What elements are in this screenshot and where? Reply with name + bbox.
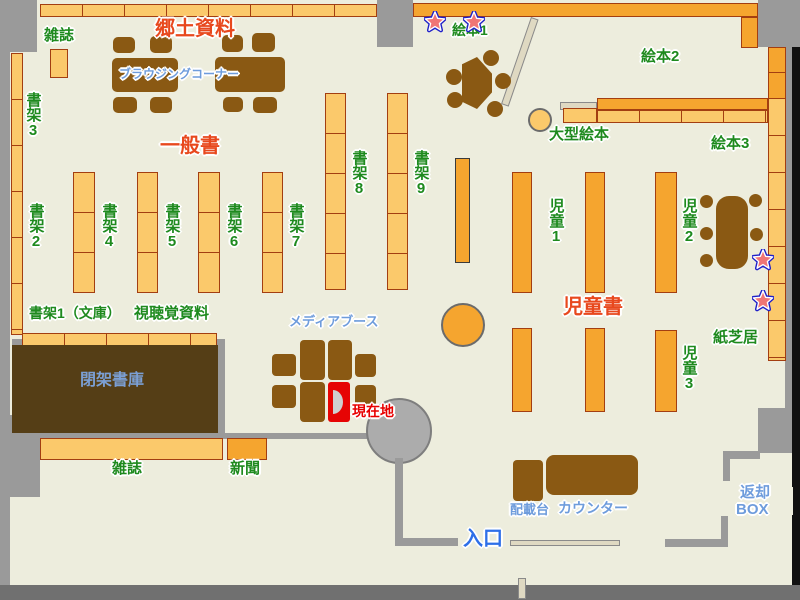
chair [223, 97, 243, 112]
media-booth-seat [300, 382, 325, 422]
haisaidai-desk [513, 460, 543, 501]
shelf-shoka4 [73, 172, 95, 293]
label-returnbox-line1: 返却 [740, 485, 770, 502]
current-location-seat [333, 390, 343, 414]
stool [487, 101, 503, 117]
label-heika-shoko: 閉架書庫 [80, 372, 144, 390]
label-media-booth: メディアブース [289, 315, 378, 329]
stool [495, 73, 511, 89]
stool [700, 254, 713, 267]
label-shoka4: 書架4 [100, 203, 117, 250]
stool [700, 227, 713, 240]
star-icon [752, 249, 774, 271]
shelf-narrow-center [455, 158, 470, 263]
label-ehon3: 絵本3 [711, 136, 749, 153]
label-counter: カウンター [558, 501, 628, 516]
chair [253, 97, 277, 113]
label-shoka9: 書架9 [412, 150, 429, 197]
shelf-jido3 [655, 330, 677, 412]
round-table-center [441, 303, 485, 347]
chair [113, 97, 137, 113]
media-booth-seat [355, 354, 376, 377]
shelf-jido-lower-1 [512, 328, 532, 412]
shelf-shinbun [227, 438, 267, 460]
chair [150, 97, 172, 113]
shelf-jido-upper-3 [655, 172, 677, 293]
label-ehon2: 絵本2 [641, 49, 679, 66]
wall-entrance-right [665, 539, 728, 547]
label-kyodo-shiryo: 郷土資料 [155, 18, 235, 40]
shelf-ehon-row-lower [597, 110, 768, 123]
label-browsing-corner: ブラウジングコーナー [119, 68, 239, 81]
shelf-shoka5 [137, 172, 158, 293]
stool [446, 69, 462, 85]
media-booth-seat [300, 340, 325, 380]
label-shoka3: 書架3 [24, 92, 41, 139]
shelf-ehon-row-upper [597, 98, 768, 110]
shelf-shoka8 [325, 93, 346, 290]
shelf-jido-upper-2 [585, 172, 605, 293]
returnbox-slot [779, 487, 793, 515]
label-jido2: 児童2 [680, 198, 697, 245]
returnbox-wall-v1 [723, 451, 730, 481]
stool [749, 194, 762, 207]
label-shichokaku: 視聴覚資料 [134, 306, 209, 323]
label-shoka6: 書架6 [225, 203, 242, 250]
label-entrance: 入口 [463, 528, 503, 550]
stool [700, 195, 713, 208]
shelf-right-wall-a1 [768, 47, 786, 73]
gate-post [518, 578, 526, 599]
current-location-marker [328, 382, 350, 422]
shelf-top-left-row [40, 4, 377, 17]
library-floor-map: 雑誌 郷土資料 ブラウジングコーナー 一般書 書架3 書架2 書架4 書架5 書… [0, 0, 800, 600]
shelf-shoka7 [262, 172, 283, 293]
counter-desk [546, 455, 638, 495]
wall-right-strip [785, 47, 792, 408]
wall-topleft-block [0, 0, 37, 52]
chair [113, 37, 135, 53]
wall-topright-block [758, 0, 800, 47]
partition-diagonal [501, 17, 539, 107]
shelf-right-wall-a2 [768, 72, 786, 99]
label-shoka2: 書架2 [27, 203, 44, 250]
label-jido3: 児童3 [680, 345, 697, 392]
label-current-location: 現在地 [352, 404, 394, 419]
star-icon [424, 11, 446, 33]
label-haisaidai: 配載台 [510, 503, 549, 517]
label-ogata-ehon: 大型絵本 [549, 127, 609, 144]
shelf-shoka6 [198, 172, 220, 293]
chair [252, 33, 275, 52]
shelf-jido-upper-1 [512, 172, 532, 293]
wall-bottom-bar [0, 585, 800, 600]
label-shoka5: 書架5 [163, 203, 180, 250]
star-icon [463, 11, 485, 33]
wall-topcenter-block [377, 0, 413, 47]
shelf-right-wall-b [768, 98, 786, 361]
stool [447, 92, 463, 108]
jido-table [716, 196, 748, 269]
shelf-zasshi-top [50, 49, 68, 78]
stool [750, 228, 763, 241]
label-shoka7: 書架7 [287, 203, 304, 250]
shelf-zasshi-bottom [40, 438, 223, 460]
label-zasshi-top: 雑誌 [44, 28, 74, 45]
label-jidosho: 児童書 [563, 296, 623, 318]
shelf-jido-lower-2 [585, 328, 605, 412]
stool [483, 50, 499, 66]
media-booth-seat [272, 354, 296, 376]
shelf-shoka9 [387, 93, 408, 290]
door-right-black [792, 47, 800, 585]
shelf-under-partition [563, 108, 597, 123]
label-shoka1-bunko: 書架1（文庫） [29, 306, 121, 321]
label-shoka8: 書架8 [350, 150, 367, 197]
media-booth-seat [328, 340, 352, 380]
returnbox-wall-v2 [721, 516, 728, 547]
wall-pillar-stem [395, 458, 403, 544]
entrance-gate [510, 540, 620, 546]
label-zasshi-bottom: 雑誌 [112, 461, 142, 478]
label-ippansho: 一般書 [160, 135, 220, 157]
closed-stacks-wall-right [218, 339, 225, 437]
media-booth-seat [272, 385, 296, 408]
shelf-left-wall [11, 53, 23, 335]
wall-left-strip [0, 0, 10, 585]
label-jido1: 児童1 [547, 198, 564, 245]
wall-entrance-left [395, 538, 458, 546]
label-returnbox-line2: BOX [736, 502, 769, 519]
returnbox-wall-block [758, 408, 792, 453]
label-shinbun: 新聞 [230, 461, 260, 478]
star-icon [752, 290, 774, 312]
label-kamishibai: 紙芝居 [713, 330, 758, 347]
shelf-top-right-corner [741, 17, 758, 48]
